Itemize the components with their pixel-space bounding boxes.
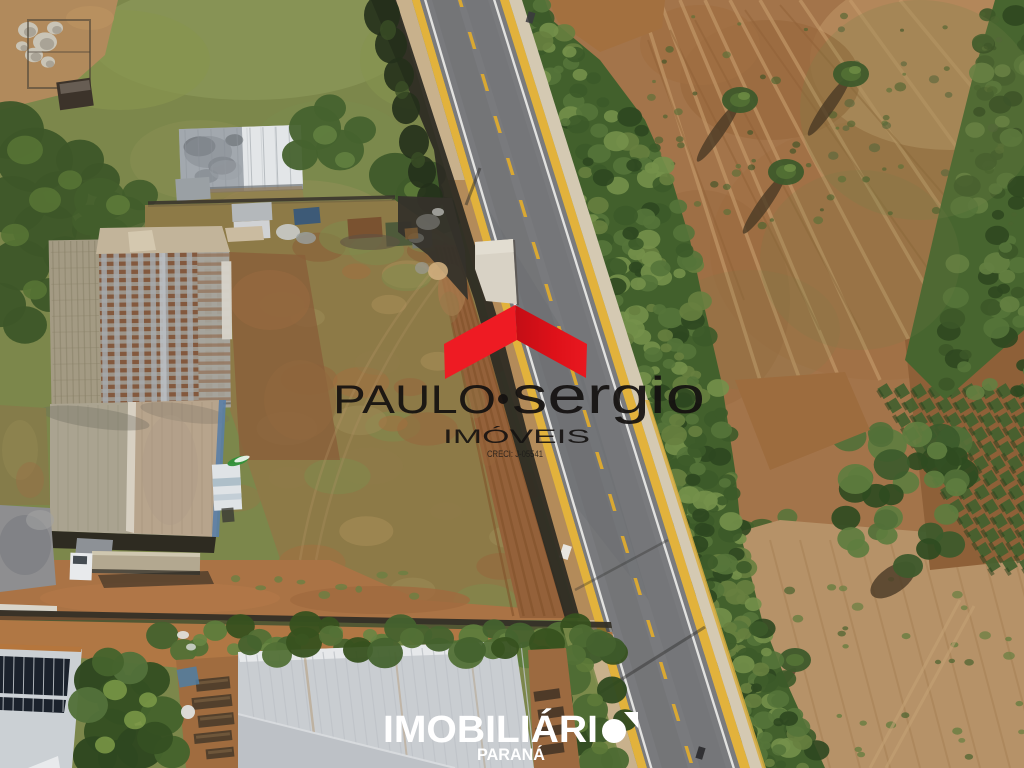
svg-text:PARANÁ: PARANÁ — [477, 745, 545, 764]
svg-text:sergio: sergio — [512, 367, 705, 425]
svg-text:PAULO: PAULO — [333, 378, 496, 422]
svg-text:IMÓVEIS: IMÓVEIS — [443, 426, 590, 448]
svg-text:CRECI: J-05541: CRECI: J-05541 — [487, 449, 543, 460]
